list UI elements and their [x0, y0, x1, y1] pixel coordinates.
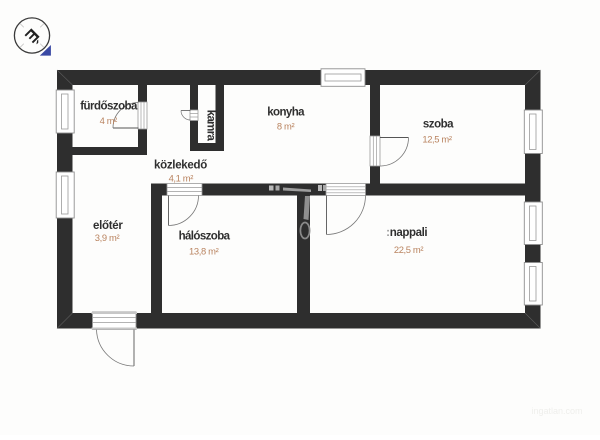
svg-text:4,1 m²: 4,1 m² [169, 173, 194, 184]
svg-text:8 m²: 8 m² [277, 121, 295, 132]
svg-text:3,9 m²: 3,9 m² [95, 232, 120, 243]
svg-text:hálószoba: hálószoba [179, 231, 231, 243]
svg-text:kamra: kamra [204, 110, 216, 142]
svg-text::: : [386, 227, 390, 239]
svg-text:nappali: nappali [390, 227, 428, 239]
svg-text:13,8 m²: 13,8 m² [189, 245, 219, 256]
svg-text:közlekedő: közlekedő [154, 159, 207, 171]
svg-text:12,5 m²: 12,5 m² [422, 133, 452, 144]
svg-text:konyha: konyha [267, 107, 305, 119]
svg-text:ingatlan.com: ingatlan.com [531, 406, 582, 416]
svg-text:22,5 m²: 22,5 m² [394, 244, 424, 255]
svg-text:előtér: előtér [93, 220, 123, 232]
svg-text:4 m²: 4 m² [100, 115, 118, 126]
svg-text:fürdőszoba: fürdőszoba [80, 101, 138, 113]
svg-text:szoba: szoba [423, 119, 454, 131]
